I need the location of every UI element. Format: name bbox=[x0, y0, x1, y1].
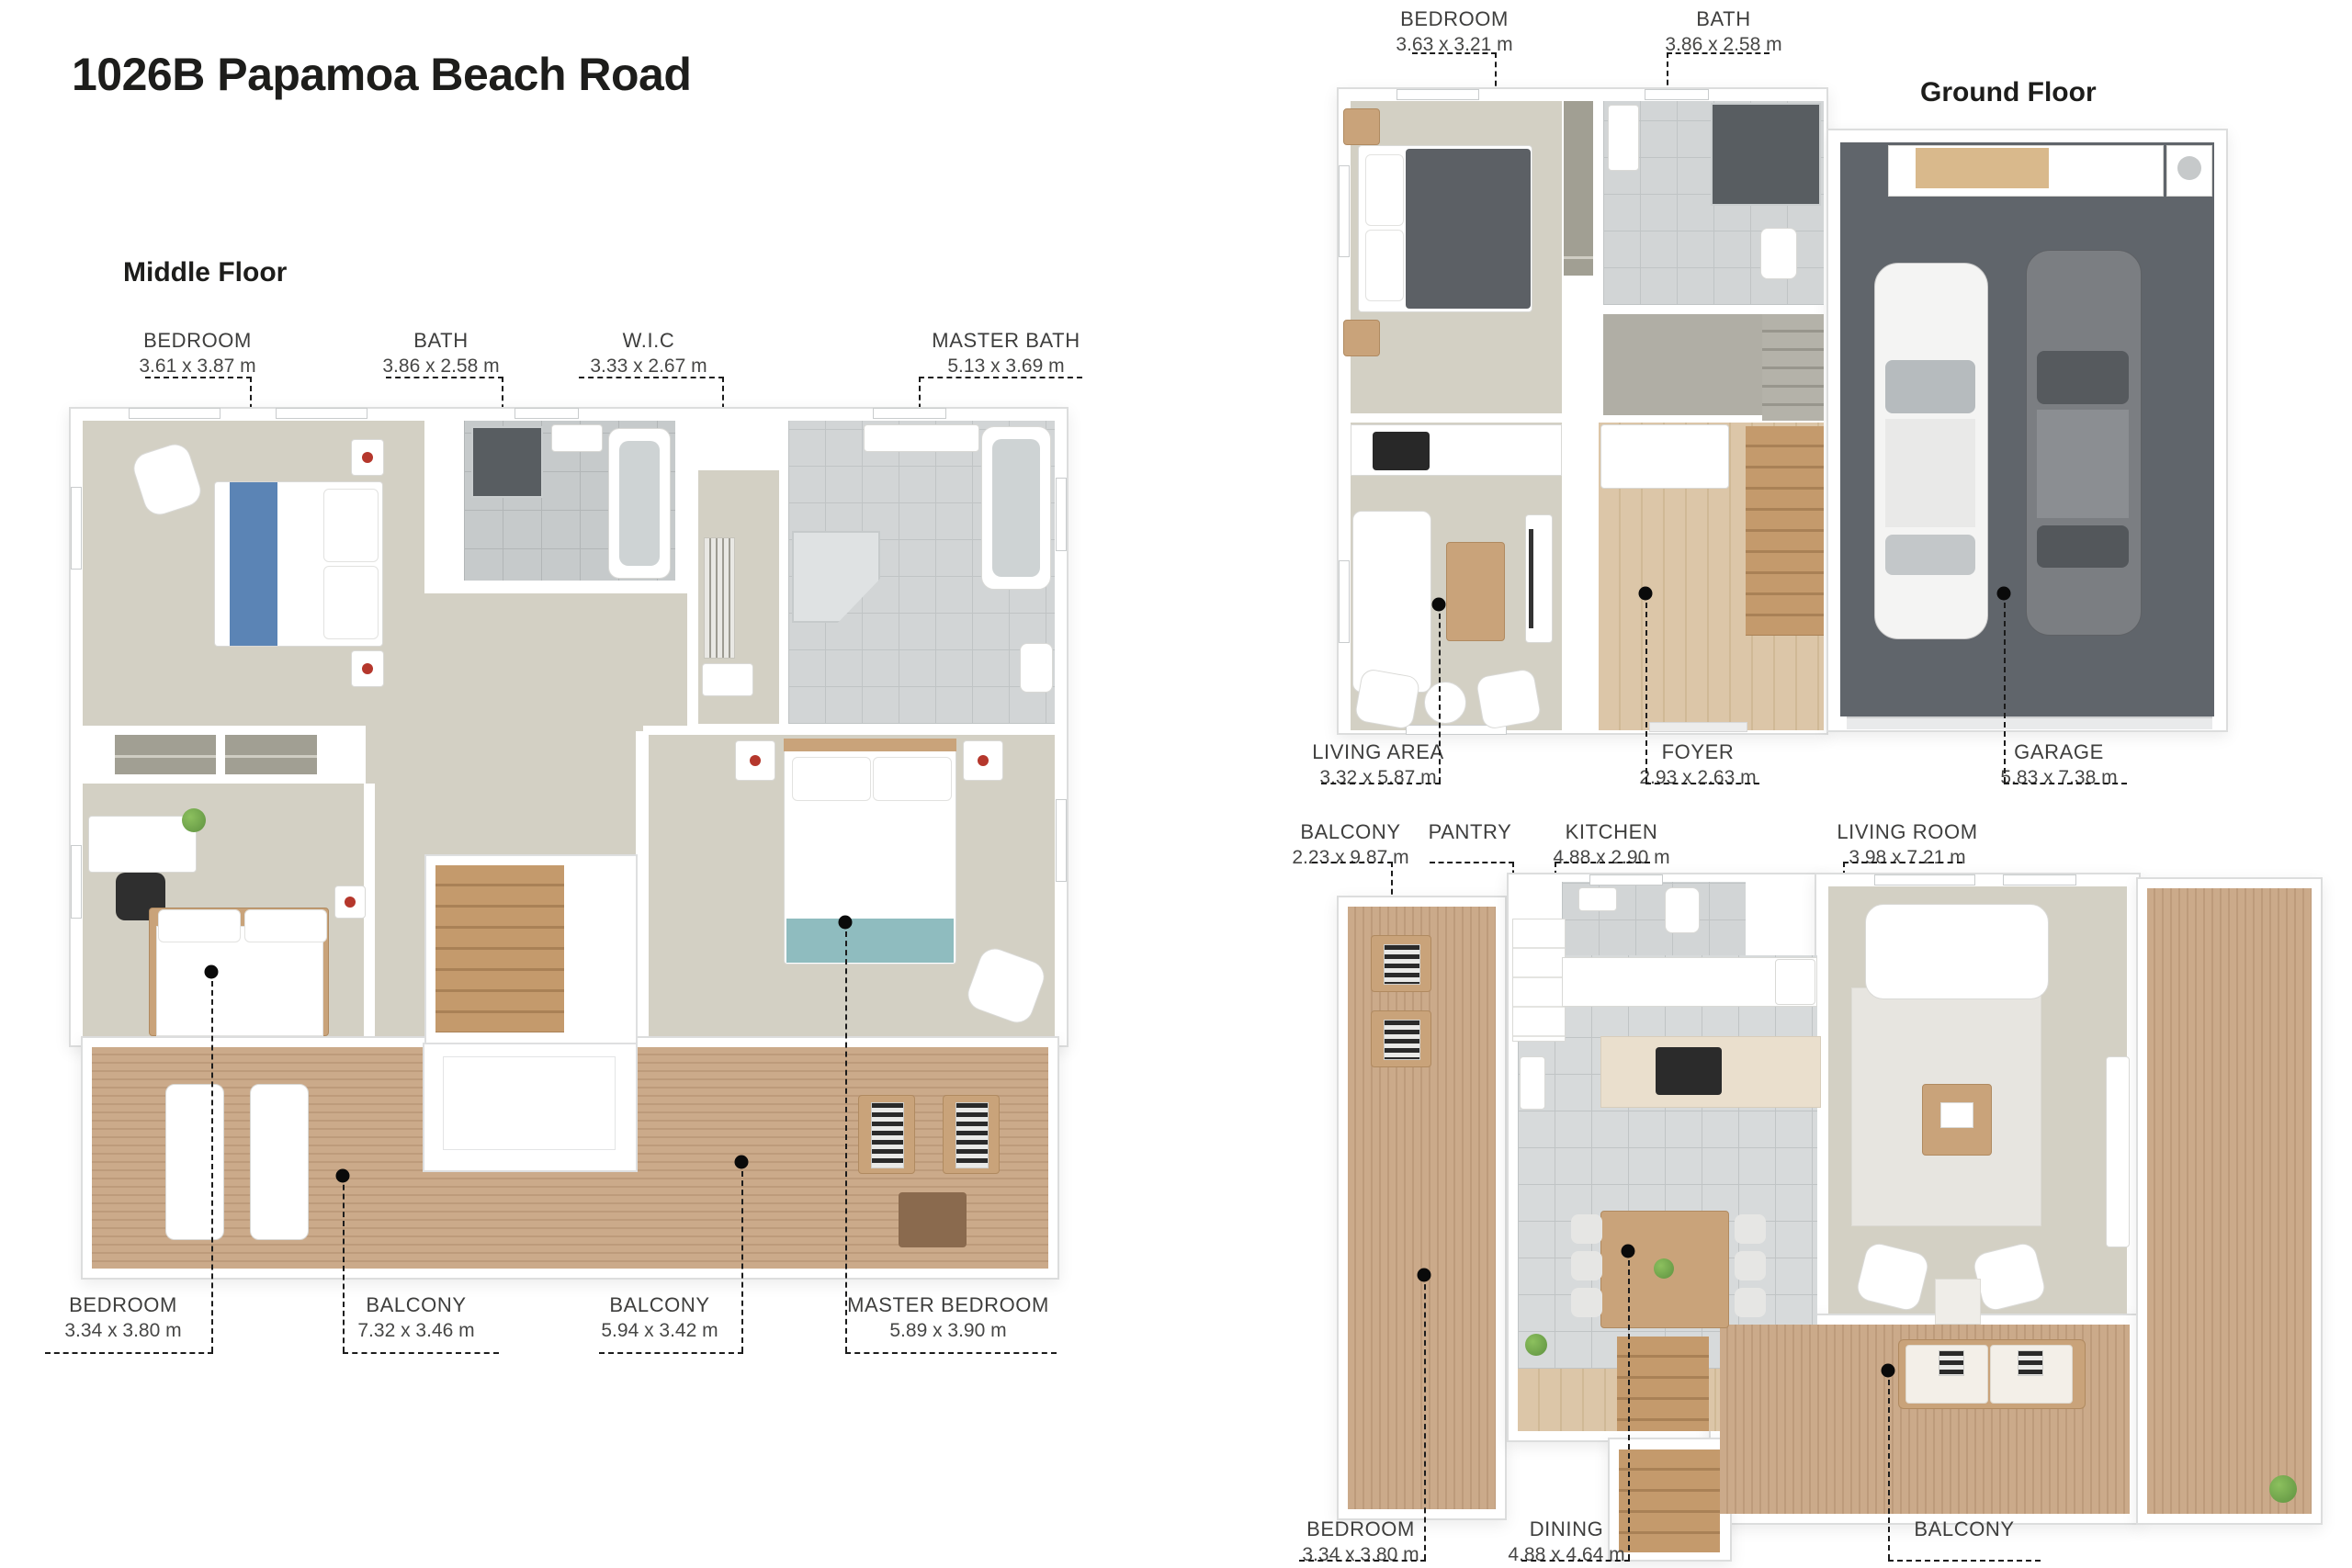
dining-chair bbox=[1735, 1251, 1766, 1280]
coffee-table bbox=[1446, 542, 1505, 641]
leader-dot bbox=[1622, 1245, 1635, 1258]
leader-line bbox=[1321, 783, 1441, 784]
room-label-bedroom: BEDROOM 3.61 x 3.87 m bbox=[139, 329, 255, 378]
throw-pillow bbox=[1939, 1350, 1964, 1376]
window bbox=[1589, 874, 1663, 886]
bathtub-basin bbox=[619, 441, 660, 566]
nightstand bbox=[351, 650, 384, 687]
room-label-pantry: PANTRY bbox=[1429, 820, 1512, 847]
leader-line bbox=[599, 1352, 743, 1354]
tv-console bbox=[2106, 1056, 2130, 1247]
nightstand bbox=[334, 886, 366, 919]
fridge bbox=[1775, 959, 1815, 1005]
window bbox=[71, 845, 82, 919]
leader-line bbox=[45, 1352, 213, 1354]
wall-segment bbox=[464, 581, 675, 593]
armchair bbox=[1353, 668, 1420, 730]
room-label-bedroom: BEDROOM 3.63 x 3.21 m bbox=[1396, 7, 1512, 56]
side-table bbox=[1424, 682, 1466, 724]
pillow bbox=[323, 566, 379, 639]
leader-line bbox=[1843, 862, 1962, 863]
window bbox=[2003, 874, 2076, 886]
closet bbox=[225, 735, 317, 774]
stairs bbox=[435, 865, 564, 1032]
window bbox=[276, 408, 367, 419]
room-label-balcony: BALCONY 7.32 x 3.46 m bbox=[357, 1293, 474, 1342]
dining-chair bbox=[1735, 1288, 1766, 1317]
outdoor-mat bbox=[899, 1192, 967, 1247]
wall-segment bbox=[687, 470, 698, 724]
window bbox=[1645, 89, 1709, 100]
deck-chair-cushion bbox=[1384, 1020, 1420, 1060]
plant bbox=[2269, 1475, 2297, 1503]
basin bbox=[1578, 887, 1617, 911]
dining-chair bbox=[1735, 1214, 1766, 1244]
leader-line bbox=[386, 377, 503, 378]
shower bbox=[471, 426, 543, 498]
side-table bbox=[1935, 1279, 1981, 1325]
nightstand bbox=[1343, 108, 1380, 145]
balcony-deck bbox=[1348, 907, 1496, 1509]
plant bbox=[182, 808, 206, 832]
leader-line bbox=[2004, 593, 2006, 783]
leader-line bbox=[1430, 862, 1514, 863]
car-rear-window bbox=[1885, 535, 1975, 575]
room-label-master-bath: MASTER BATH 5.13 x 3.69 m bbox=[932, 329, 1080, 378]
window bbox=[129, 408, 220, 419]
bed-runner bbox=[786, 919, 954, 963]
tv bbox=[1529, 529, 1533, 628]
leader-line bbox=[1412, 52, 1497, 54]
leader-line bbox=[2004, 783, 2127, 784]
leader-dot bbox=[336, 1169, 350, 1183]
leader-line bbox=[1312, 862, 1393, 863]
wardrobe-shelf bbox=[704, 537, 735, 659]
car-windshield bbox=[2037, 351, 2129, 404]
leader-line bbox=[145, 377, 252, 378]
garage-door bbox=[1847, 716, 2212, 729]
room-label-bath: BATH 3.86 x 2.58 m bbox=[382, 329, 499, 378]
room-label-master-bedroom: MASTER BEDROOM 5.89 x 3.90 m bbox=[847, 1293, 1049, 1342]
nightstand bbox=[1343, 320, 1380, 356]
wardrobe bbox=[1564, 101, 1593, 276]
duvet bbox=[156, 926, 323, 1036]
books bbox=[1940, 1102, 1973, 1128]
window bbox=[873, 408, 946, 419]
stairs bbox=[1617, 1337, 1709, 1431]
sink-basin bbox=[2177, 156, 2201, 180]
leader-line bbox=[1667, 52, 1770, 54]
bench bbox=[702, 663, 753, 696]
nightstand bbox=[963, 740, 1003, 781]
pillow bbox=[244, 909, 327, 942]
leader-line bbox=[1888, 1560, 2041, 1562]
room-label-balcony-2: BALCONY 5.94 x 3.42 m bbox=[601, 1293, 718, 1342]
foyer-cabinet bbox=[1600, 424, 1729, 489]
leader-line bbox=[1888, 1371, 1890, 1560]
leader-dot bbox=[1639, 587, 1653, 601]
room-label-bedroom-2: BEDROOM 3.34 x 3.80 m bbox=[64, 1293, 181, 1342]
car-roof bbox=[2037, 410, 2129, 518]
window bbox=[1874, 874, 1975, 886]
plant bbox=[1654, 1258, 1674, 1279]
car-rear-window bbox=[2037, 525, 2129, 568]
pillow bbox=[1365, 230, 1404, 301]
leader-line bbox=[845, 1352, 1057, 1354]
pillow bbox=[792, 757, 871, 801]
cooktop bbox=[1656, 1047, 1722, 1095]
room-label-bath: BATH 3.86 x 2.58 m bbox=[1665, 7, 1781, 56]
stairs bbox=[1619, 1450, 1720, 1552]
toilet bbox=[1760, 228, 1797, 279]
toilet bbox=[1020, 643, 1053, 693]
room-label-balcony: BALCONY bbox=[1914, 1517, 2014, 1544]
window bbox=[1396, 89, 1479, 100]
leader-line bbox=[919, 377, 1082, 378]
cooktop bbox=[1373, 432, 1430, 470]
window bbox=[1056, 478, 1067, 551]
duvet bbox=[1406, 149, 1531, 309]
car-roof bbox=[1885, 419, 1975, 527]
dining-chair bbox=[1571, 1214, 1602, 1244]
sofa bbox=[1865, 904, 2049, 999]
leader-line bbox=[1439, 604, 1441, 783]
bathtub-basin bbox=[992, 439, 1040, 577]
nightstand bbox=[735, 740, 775, 781]
leader-line bbox=[1521, 1560, 1630, 1562]
leader-line bbox=[1424, 1275, 1426, 1560]
headboard bbox=[784, 739, 956, 751]
window bbox=[71, 487, 82, 570]
leader-line bbox=[579, 377, 724, 378]
dining-chair bbox=[1571, 1288, 1602, 1317]
vanity bbox=[551, 424, 603, 452]
toilet bbox=[1665, 887, 1700, 933]
entry-door bbox=[1649, 722, 1747, 732]
desk bbox=[88, 816, 197, 873]
leader-dot bbox=[1418, 1269, 1431, 1282]
lamp bbox=[750, 755, 761, 766]
lamp bbox=[345, 897, 356, 908]
armchair bbox=[1475, 668, 1542, 730]
leader-line bbox=[343, 1176, 345, 1352]
leader-dot bbox=[1432, 598, 1446, 612]
sun-lounger bbox=[165, 1084, 224, 1240]
leader-dot bbox=[1882, 1364, 1895, 1378]
leader-dot bbox=[205, 965, 219, 979]
sofa bbox=[1352, 511, 1431, 693]
closet bbox=[115, 735, 216, 774]
lamp bbox=[978, 755, 989, 766]
leader-line bbox=[1299, 1560, 1426, 1562]
window bbox=[514, 408, 579, 419]
plant bbox=[1525, 1334, 1547, 1356]
balcony-deck bbox=[2147, 888, 2312, 1514]
shower bbox=[1711, 103, 1821, 206]
deck-chair-cushion bbox=[1384, 944, 1420, 985]
leader-line bbox=[1645, 593, 1647, 783]
page-title: 1026B Papamoa Beach Road bbox=[72, 48, 691, 101]
pillow bbox=[1365, 154, 1404, 226]
dining-chair bbox=[1571, 1251, 1602, 1280]
leader-line bbox=[1645, 783, 1759, 784]
leader-line bbox=[1555, 862, 1650, 863]
leader-line bbox=[845, 922, 847, 1352]
window bbox=[1339, 165, 1350, 257]
stairs bbox=[1746, 426, 1824, 636]
ground-floor-heading: Ground Floor bbox=[1920, 77, 2097, 108]
pillow bbox=[873, 757, 952, 801]
deck-chair-cushion bbox=[871, 1102, 904, 1168]
room-hallway bbox=[366, 593, 687, 726]
leader-line bbox=[211, 972, 213, 1352]
throw-pillow bbox=[2018, 1350, 2043, 1376]
nightstand bbox=[351, 439, 384, 476]
leader-line bbox=[741, 1162, 743, 1352]
kitchen-sink bbox=[1520, 1056, 1545, 1110]
vanity bbox=[1608, 105, 1639, 171]
pantry-shelves bbox=[1512, 919, 1566, 1042]
middle-floor-heading: Middle Floor bbox=[123, 257, 287, 288]
room-label-wic: W.I.C 3.33 x 2.67 m bbox=[590, 329, 707, 378]
leader-dot bbox=[735, 1156, 749, 1169]
window bbox=[1339, 560, 1350, 643]
lamp bbox=[362, 663, 373, 674]
car-windshield bbox=[1885, 360, 1975, 413]
bed-runner bbox=[230, 482, 277, 646]
pillow bbox=[323, 489, 379, 562]
leader-line bbox=[1628, 1251, 1630, 1560]
leader-dot bbox=[839, 916, 853, 930]
deck-chair-cushion bbox=[955, 1102, 989, 1168]
vanity bbox=[864, 424, 979, 452]
leader-line bbox=[343, 1352, 499, 1354]
window bbox=[1056, 799, 1067, 882]
pillow bbox=[158, 909, 241, 942]
stairs bbox=[1762, 314, 1824, 421]
lamp bbox=[362, 452, 373, 463]
leader-dot bbox=[1997, 587, 2011, 601]
sun-lounger bbox=[250, 1084, 309, 1240]
stair-void-opening bbox=[443, 1056, 616, 1150]
workbench-top bbox=[1916, 148, 2049, 188]
wall-segment bbox=[636, 731, 649, 1036]
